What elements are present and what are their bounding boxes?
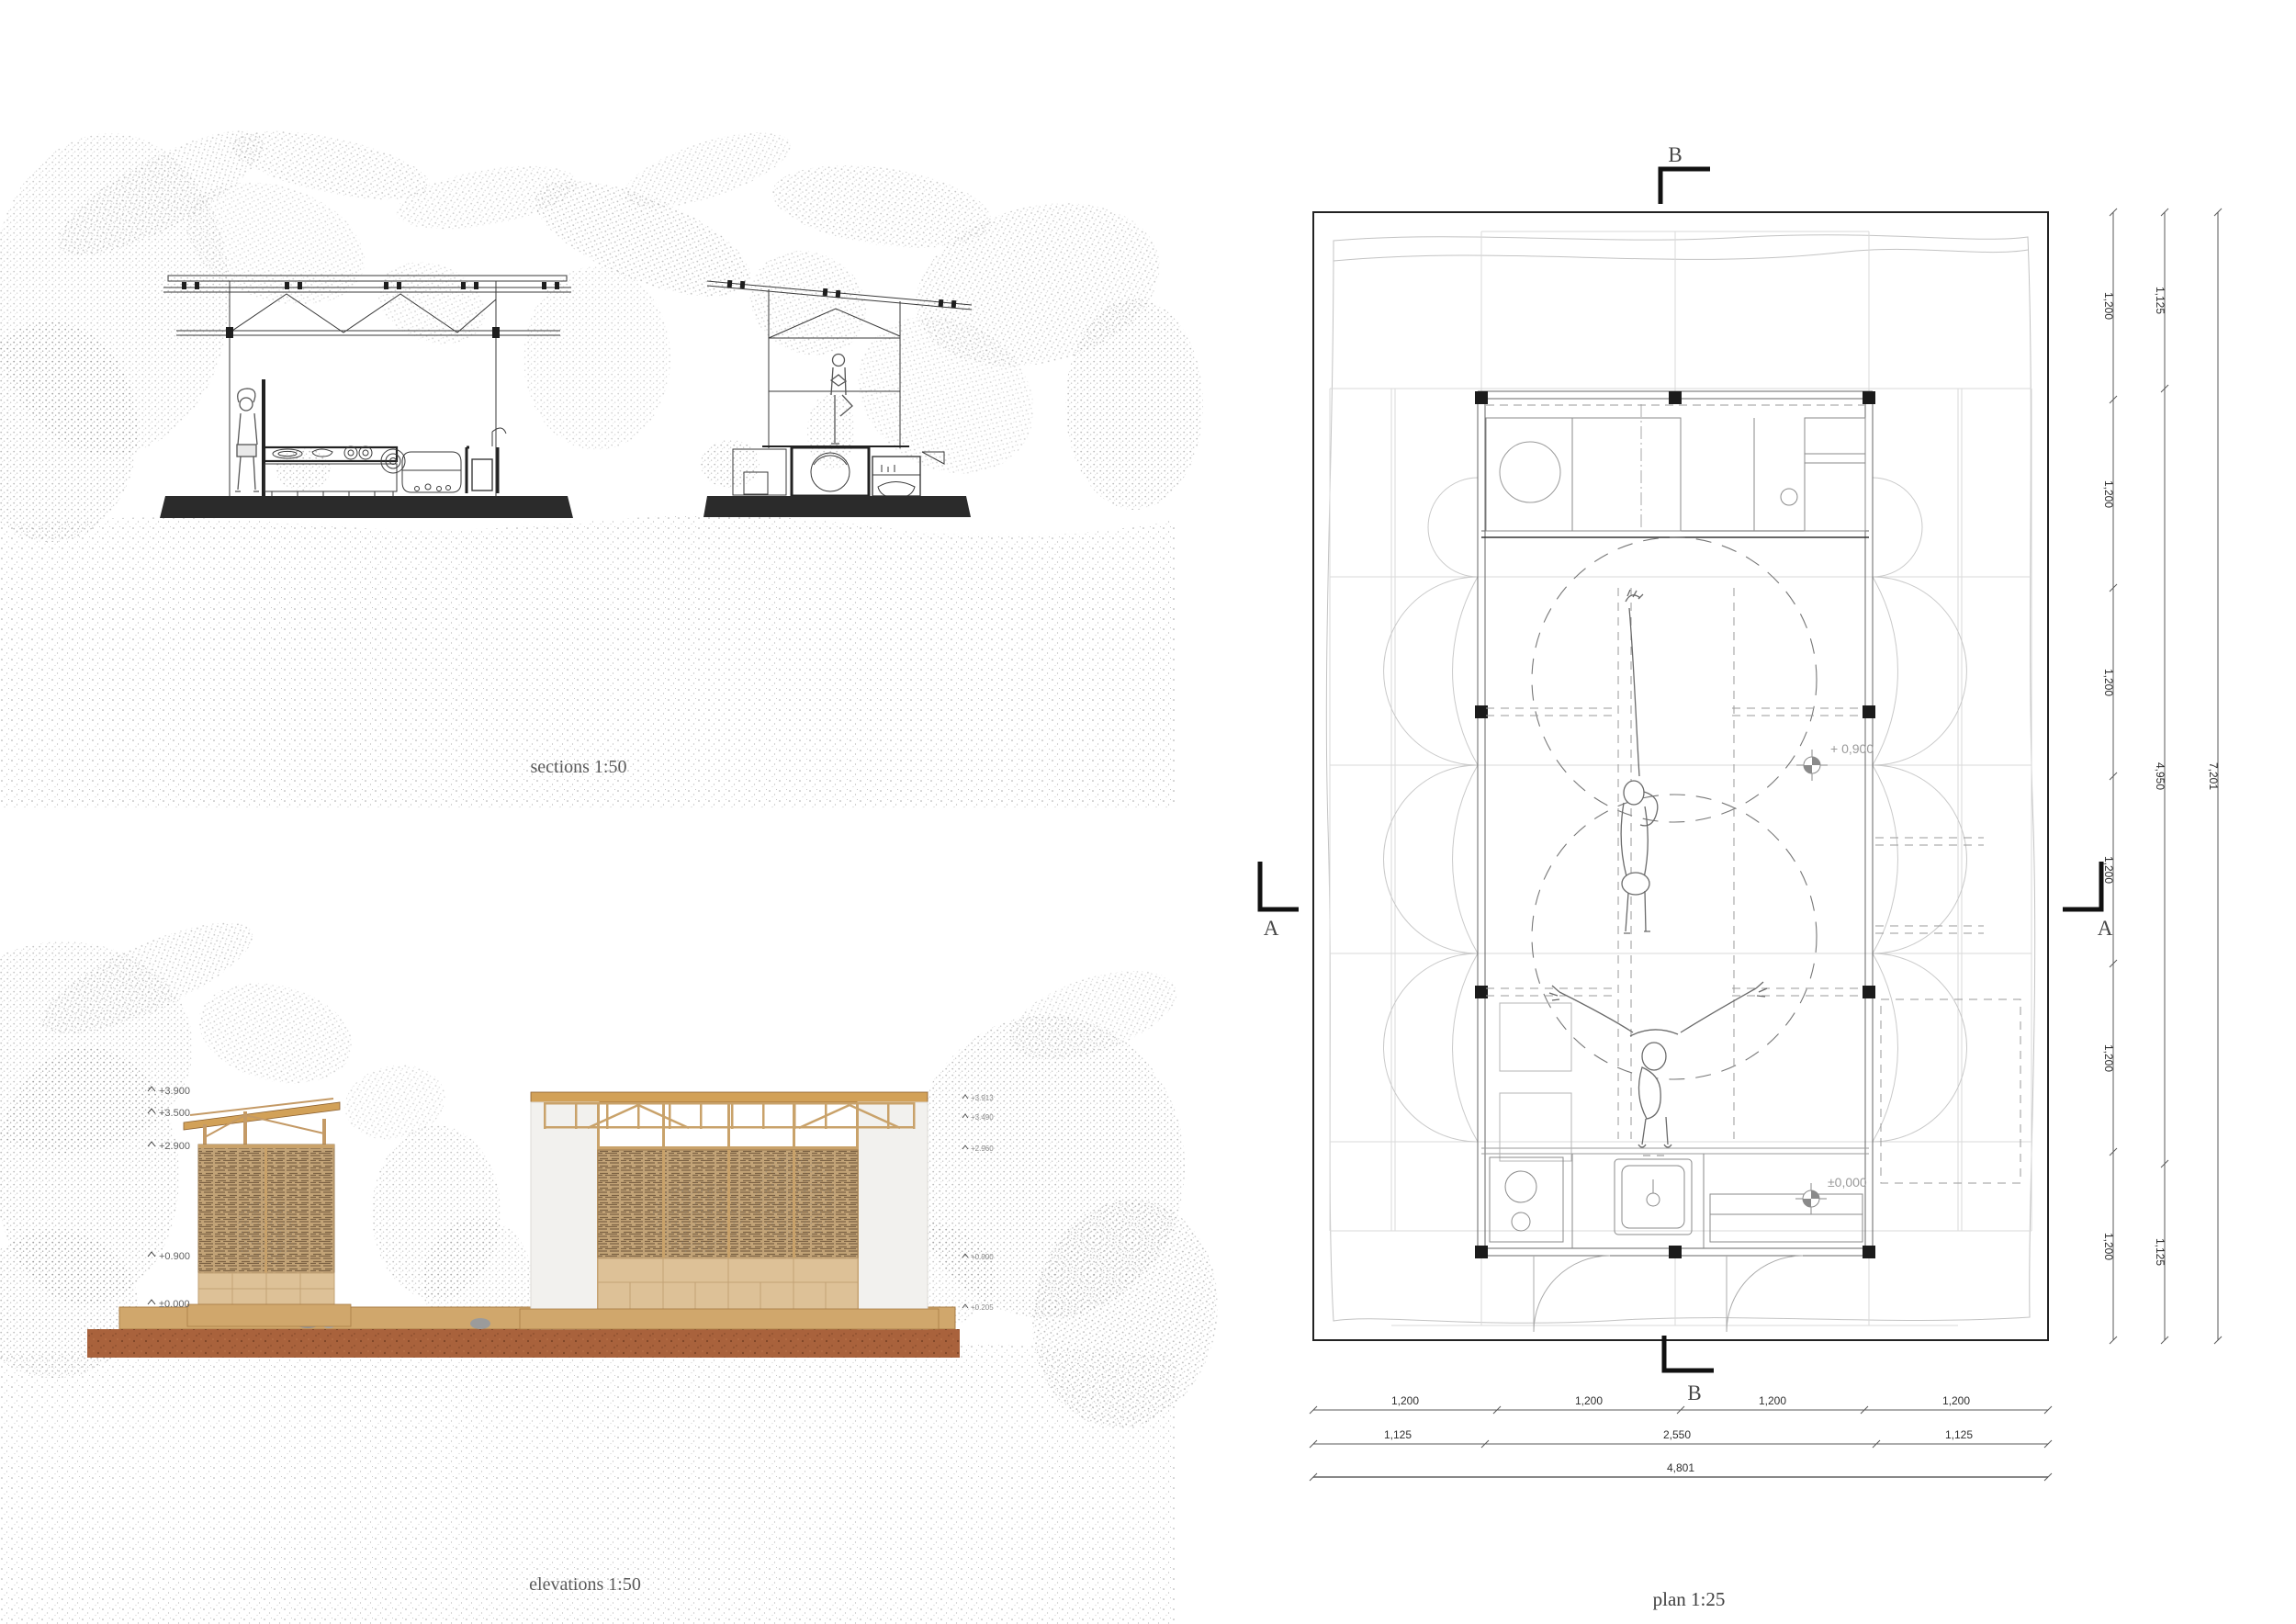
elevations-caption: elevations 1:50 (529, 1574, 641, 1595)
architecture-drawing-sheet: sections 1:50 (0, 0, 2296, 1624)
dim-label: 1,125 (2154, 287, 2167, 314)
dim-label: 1,200 (2102, 480, 2115, 508)
soil-strip (87, 1329, 960, 1358)
yoga-room (1486, 537, 2020, 1183)
elevation-drawing-left (184, 1099, 351, 1326)
plan-level-upper: + 0,900 (1830, 741, 1874, 756)
dim-label: 4,950 (2154, 762, 2167, 790)
dim-label: 1,200 (1759, 1394, 1786, 1407)
dim-label: 1,200 (2102, 1044, 2115, 1072)
human-figure-shower (235, 389, 259, 491)
human-figure-reaching (1621, 590, 1658, 933)
sections-panel: sections 1:50 (0, 108, 1203, 808)
section-markers (1260, 169, 2101, 1370)
dim-label: 1,125 (2154, 1238, 2167, 1266)
dim-label: 1,200 (1575, 1394, 1603, 1407)
section-marker-b-top (1660, 169, 1710, 204)
marker-letter-b-bottom: B (1687, 1382, 1701, 1404)
dim-label: 1,200 (2102, 856, 2115, 884)
dim-label: 1,200 (1391, 1394, 1419, 1407)
sheet-canvas: sections 1:50 (0, 0, 2296, 1624)
level-label: +3.500 (159, 1108, 190, 1119)
dim-label: 1,125 (1945, 1428, 1973, 1441)
elevations-panel: +3.900 +3.500 +2.900 +0.900 ±0.000 +3.91… (0, 901, 1235, 1624)
level-label: +2.900 (159, 1141, 190, 1152)
floor-mats (1500, 1003, 1571, 1161)
plan-level-ground: ±0,000 (1828, 1175, 1867, 1190)
plan-panel: + 0,900 ±0,000 B B A A 1,200 1,200 (1260, 143, 2222, 1610)
level-label-small: +3.490 (971, 1113, 994, 1122)
level-label: ±0.000 (159, 1299, 190, 1310)
dim-label: 1,200 (1942, 1394, 1970, 1407)
dimension-chain-bottom: 1,200 1,200 1,200 1,200 1,125 2,550 1,12… (1310, 1394, 2052, 1481)
section-marker-a-right (2063, 862, 2101, 909)
plan-frame (1313, 212, 2048, 1340)
dim-label: 1,125 (1384, 1428, 1412, 1441)
dim-label: 2,550 (1663, 1428, 1691, 1441)
kitchen-counter-top (1486, 404, 1865, 531)
dim-label: 1,200 (2102, 292, 2115, 320)
dim-label-total: 7,201 (2207, 762, 2220, 790)
columns (1475, 391, 1875, 1258)
dim-label: 1,200 (2102, 669, 2115, 696)
structure-beams (1478, 391, 1873, 1256)
dimension-chain-right: 1,200 1,200 1,200 1,200 1,200 1,200 1,12… (2102, 209, 2222, 1344)
stone (470, 1318, 490, 1329)
dim-label-total: 4,801 (1667, 1461, 1694, 1474)
plan-caption: plan 1:25 (1653, 1588, 1726, 1610)
section-marker-a-left (1260, 862, 1299, 909)
level-label-small: +0.900 (971, 1253, 994, 1261)
movement-circle-upper (1532, 537, 1817, 822)
dashed-partitions (1486, 588, 2020, 1183)
level-label-small: +2.960 (971, 1145, 994, 1153)
foliage-backdrop-sections (0, 108, 1203, 542)
sections-caption: sections 1:50 (531, 757, 627, 777)
level-label: +3.900 (159, 1086, 190, 1097)
door-swings (1534, 1256, 1803, 1332)
movement-circle-lower (1532, 795, 1817, 1079)
level-label-small: +3.913 (971, 1094, 994, 1102)
marker-letter-a-right: A (2098, 917, 2113, 940)
level-label: +0.900 (159, 1251, 190, 1262)
benchmark-upper: + 0,900 (1796, 741, 1874, 781)
marker-letter-a-left: A (1264, 917, 1279, 940)
marker-letter-b-top: B (1668, 143, 1682, 166)
elevation-drawing-right (520, 1092, 939, 1329)
level-label-small: +0.205 (971, 1303, 994, 1312)
dim-label: 1,200 (2102, 1233, 2115, 1260)
